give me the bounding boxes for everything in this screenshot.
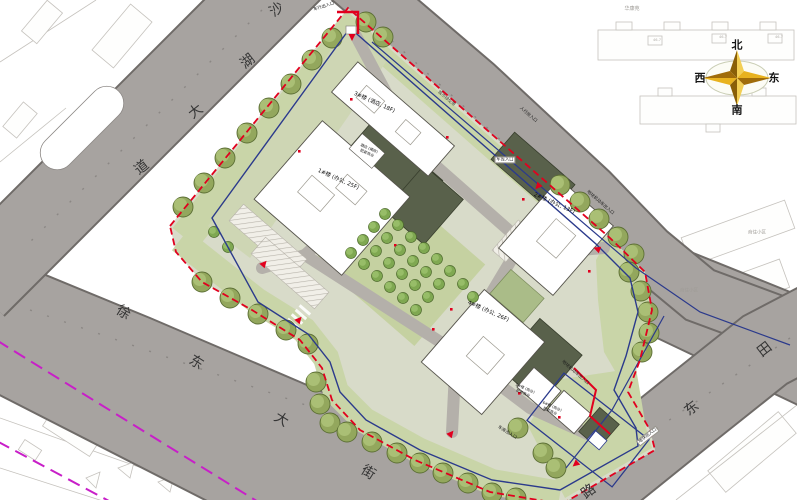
site-plan: 沙 湖 大 道 徐 东 大 街 田 东 路 北 南 西 东 3#楼 (酒店, 1… xyxy=(0,0,797,500)
neighbor-complex-right-label-2: 商住小区 xyxy=(680,288,698,293)
neighbor-unit-label-1: 46-7 xyxy=(653,38,661,42)
neighbor-unit-label-3: 46-7 xyxy=(775,35,783,39)
compass-east-label: 东 xyxy=(769,71,780,84)
neighbor-complex-top-label: 华康苑 xyxy=(624,6,639,12)
neighbor-complex-right-label-1: 商住小区 xyxy=(748,230,766,235)
annotation-garage-entrance: 车库入口 xyxy=(495,157,514,162)
neighbor-unit-label-2: 46-7 xyxy=(719,35,727,39)
site-plan-drawing xyxy=(0,0,797,500)
compass-south-label: 南 xyxy=(732,103,743,116)
compass-north-label: 北 xyxy=(732,38,743,51)
compass-west-label: 西 xyxy=(695,71,706,84)
